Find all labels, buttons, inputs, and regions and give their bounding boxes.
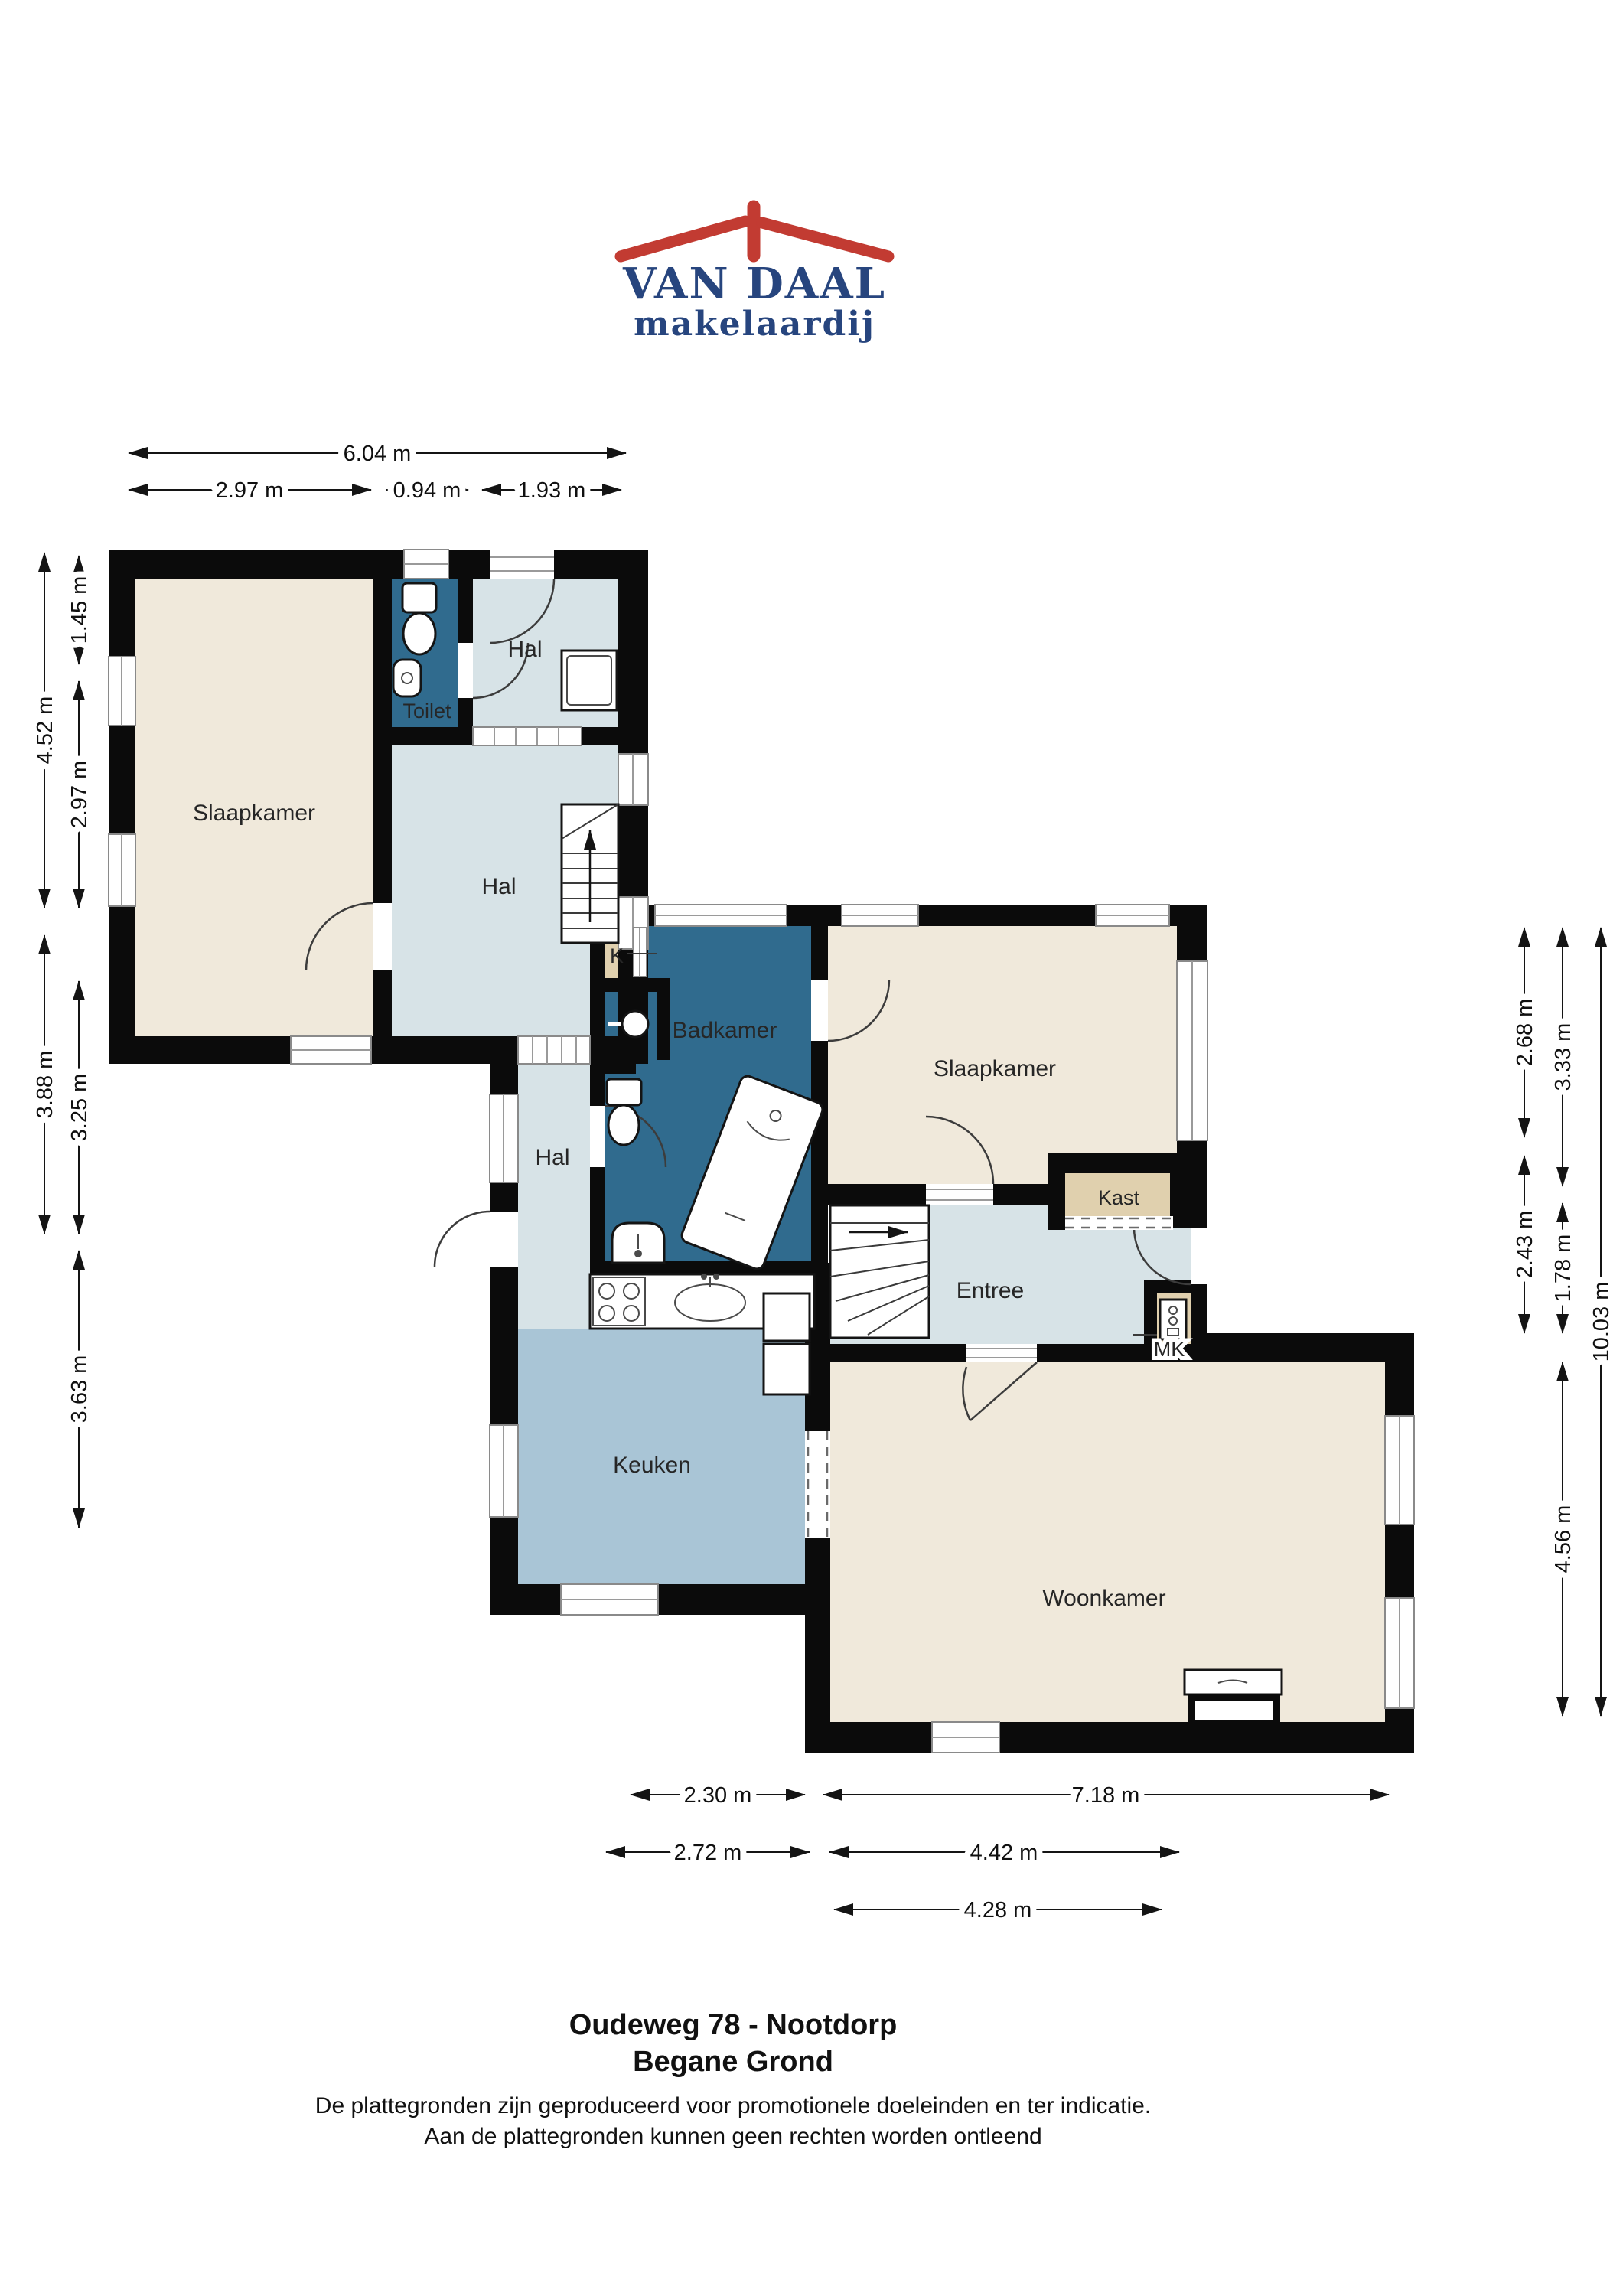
dim-right-total: 10.03 m — [1589, 928, 1614, 1716]
floor-plan: Slaapkamer Toilet Hal Hal Hal Badkamer K… — [0, 0, 1623, 2296]
dim-left2-b: 3.63 m — [67, 1251, 92, 1528]
page-title-line2: Begane Grond — [0, 2043, 1466, 2080]
page-title-line1: Oudeweg 78 - Nootdorp — [0, 2007, 1466, 2043]
door-keuken — [435, 1212, 518, 1267]
room-slaapkamer-rechts — [828, 926, 1177, 1184]
stairs-winder — [830, 1205, 929, 1338]
label-k-closet: K — [610, 944, 624, 967]
dim-bottom-b: 7.18 m — [823, 1783, 1389, 1808]
window — [1385, 1598, 1414, 1708]
svg-text:2.97 m: 2.97 m — [216, 478, 284, 503]
svg-text:2.30 m: 2.30 m — [684, 1783, 752, 1808]
label-toilet: Toilet — [402, 700, 451, 722]
window — [561, 1584, 658, 1615]
dim-right-c: 3.33 m — [1551, 928, 1576, 1186]
label-slaapkamer-rechts: Slaapkamer — [934, 1056, 1056, 1081]
fireplace — [1185, 1670, 1282, 1722]
svg-text:3.88 m: 3.88 m — [33, 1051, 57, 1119]
svg-text:10.03 m: 10.03 m — [1589, 1282, 1614, 1362]
window — [842, 905, 918, 926]
svg-text:0.94 m: 0.94 m — [393, 478, 461, 503]
window — [490, 1425, 518, 1517]
dim-bottom-d: 4.42 m — [829, 1841, 1179, 1865]
dim-bottom-e: 4.28 m — [834, 1898, 1162, 1923]
svg-text:1.45 m: 1.45 m — [67, 576, 92, 644]
svg-text:1.93 m: 1.93 m — [518, 478, 586, 503]
passage-hal — [473, 727, 582, 745]
dim-width-total: 6.04 m — [129, 442, 626, 466]
svg-text:3.25 m: 3.25 m — [67, 1074, 92, 1142]
room-hal-gang — [518, 1036, 590, 1329]
window — [618, 754, 648, 805]
dim-right-a: 2.68 m — [1513, 928, 1537, 1137]
dim-bottom-a: 2.30 m — [631, 1783, 805, 1808]
window — [291, 1036, 371, 1064]
svg-text:2.43 m: 2.43 m — [1513, 1211, 1537, 1279]
label-hal-midden: Hal — [481, 874, 516, 899]
passage-gang — [518, 1036, 590, 1064]
label-hal-gang: Hal — [535, 1145, 569, 1170]
dim-bottom-c: 2.72 m — [606, 1841, 810, 1865]
window — [109, 657, 135, 726]
window — [1096, 905, 1169, 926]
dim-right-b: 2.43 m — [1513, 1156, 1537, 1333]
dim-width-c: 1.93 m — [482, 478, 621, 503]
dim-right-e: 4.56 m — [1551, 1362, 1576, 1716]
dim-width-a: 2.97 m — [129, 478, 371, 503]
svg-text:2.97 m: 2.97 m — [67, 761, 92, 829]
svg-text:2.68 m: 2.68 m — [1513, 999, 1537, 1067]
badkamer-toilet — [607, 1079, 641, 1145]
window — [109, 834, 135, 906]
window — [1177, 961, 1207, 1140]
svg-text:3.63 m: 3.63 m — [67, 1355, 92, 1424]
label-keuken: Keuken — [613, 1453, 691, 1478]
dim-left2-a: 3.25 m — [67, 981, 92, 1234]
svg-text:6.04 m: 6.04 m — [344, 442, 412, 466]
label-kast: Kast — [1098, 1186, 1140, 1209]
label-entree: Entree — [957, 1278, 1024, 1303]
footer: Oudeweg 78 - Nootdorp Begane Grond De pl… — [0, 2007, 1466, 2152]
dim-left-total: 4.52 m — [33, 553, 57, 908]
svg-text:3.33 m: 3.33 m — [1551, 1023, 1576, 1091]
label-slaapkamer-links: Slaapkamer — [193, 801, 315, 826]
window — [490, 1094, 518, 1182]
dim-left-b: 2.97 m — [67, 681, 92, 908]
svg-text:4.56 m: 4.56 m — [1551, 1505, 1576, 1574]
stairs-straight — [562, 804, 618, 943]
dim-left-a: 1.45 m — [67, 556, 92, 664]
disclaimer-line2: Aan de plattegronden kunnen geen rechten… — [0, 2122, 1466, 2152]
disclaimer-line1: De plattegronden zijn geproduceerd voor … — [0, 2091, 1466, 2122]
dim-right-d: 1.78 m — [1551, 1203, 1576, 1333]
toilet-fixture — [402, 583, 436, 654]
svg-text:2.72 m: 2.72 m — [674, 1841, 742, 1865]
dim-width-b: 0.94 m — [386, 478, 468, 503]
kitchen-appliances — [764, 1293, 810, 1394]
window — [655, 905, 787, 926]
toilet-sink — [393, 660, 421, 696]
dim-left2-total: 3.88 m — [33, 935, 57, 1234]
room-woonkamer — [830, 1362, 1385, 1722]
svg-text:4.52 m: 4.52 m — [33, 696, 57, 765]
washing-machine — [562, 651, 617, 710]
svg-text:4.42 m: 4.42 m — [970, 1841, 1038, 1865]
label-badkamer: Badkamer — [673, 1018, 777, 1043]
window — [932, 1722, 999, 1753]
window — [1385, 1416, 1414, 1525]
svg-text:7.18 m: 7.18 m — [1072, 1783, 1140, 1808]
opening-kast — [1065, 1216, 1173, 1230]
label-woonkamer: Woonkamer — [1042, 1586, 1165, 1611]
svg-text:4.28 m: 4.28 m — [964, 1898, 1032, 1923]
opening-keuken-woonkamer — [805, 1431, 830, 1538]
door-k-closet — [634, 928, 647, 977]
window — [404, 550, 448, 579]
svg-text:1.78 m: 1.78 m — [1551, 1234, 1576, 1303]
label-meterkast: MK — [1154, 1338, 1185, 1361]
label-hal-boven: Hal — [507, 637, 542, 662]
meter-fixture — [1160, 1300, 1186, 1339]
badkamer-sink-small — [612, 1223, 664, 1263]
